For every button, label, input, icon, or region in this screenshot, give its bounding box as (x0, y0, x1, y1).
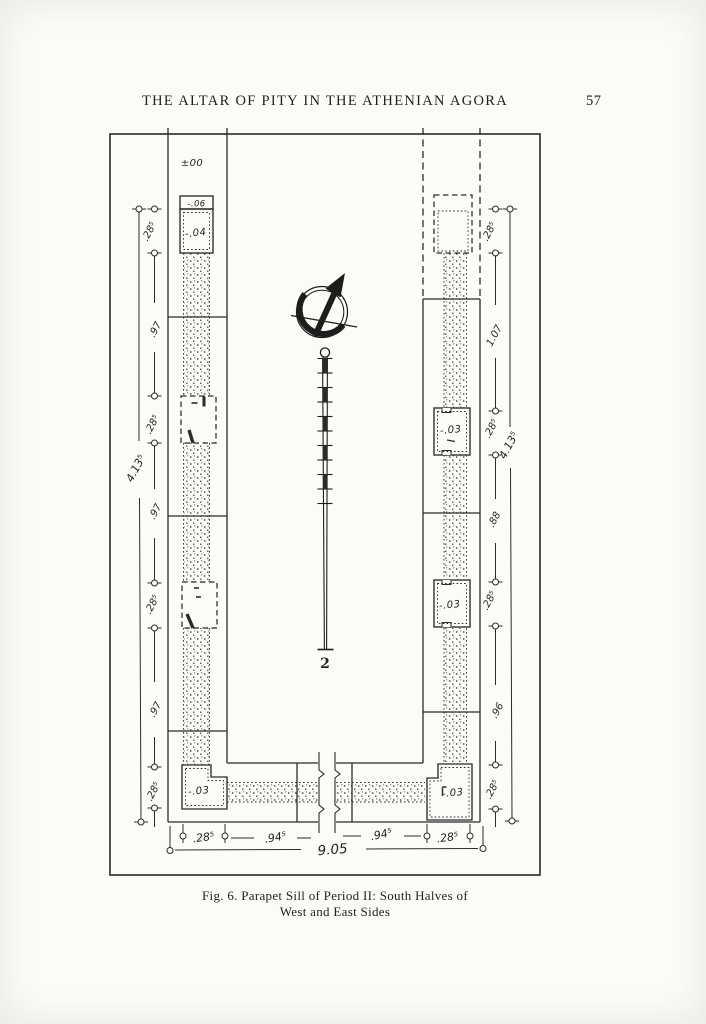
west-dim-0: .28⁵ (140, 220, 159, 243)
west-dim-3: .97 (147, 502, 164, 522)
figure-caption: Fig. 6. Parapet Sill of Period II: South… (105, 888, 565, 920)
east-dim-4: .28⁵ (480, 589, 499, 612)
west-cap-elevation: -.06 (187, 200, 205, 210)
east-dim-2: .28⁵ (482, 417, 501, 440)
east-top-dashed-block (434, 195, 472, 253)
south-dim-1: .94⁵ (263, 829, 287, 846)
datum-label: ±00 (181, 158, 204, 169)
south-sill (168, 752, 480, 833)
leveling-rod-icon (318, 348, 334, 650)
west-dashed-block-1 (181, 396, 216, 443)
page-number: 57 (586, 93, 602, 110)
caption-line-1: Fig. 6. Parapet Sill of Period II: South… (105, 888, 565, 904)
east-mid-elevation: -.03 (440, 424, 462, 437)
east-dim-0: .28⁵ (480, 220, 499, 243)
south-dim-3: .28⁵ (436, 830, 460, 846)
east-lower-elevation: -.03 (439, 599, 461, 612)
east-dim-3: .88 (486, 510, 503, 529)
south-overall-dim: 9.05 (317, 841, 348, 860)
west-dim-5: .97 (147, 700, 164, 720)
west-block-elevation: -.04 (184, 227, 207, 240)
east-dim-6: .28⁵ (483, 778, 502, 801)
west-dim-2: .28⁵ (143, 413, 162, 436)
west-corner-elevation: -.03 (188, 785, 210, 798)
figure-border (110, 134, 540, 875)
east-dim-5: .96 (489, 701, 506, 720)
west-dim-6: .28⁵ (144, 780, 163, 803)
east-overall-dim: 4.13⁵ (496, 430, 521, 462)
south-dim-0: .28⁵ (192, 830, 216, 846)
rod-length-label: 2 (320, 656, 330, 672)
east-dim-1: 1.07 (485, 323, 505, 348)
figure-6-plan: ±00 -.06 -.04 -.03 -.03 -.03 -.03 .28⁵ .… (100, 120, 550, 885)
north-arrow-icon (291, 273, 357, 338)
west-overall-dim: 4.13⁵ (123, 453, 148, 485)
break-mark (319, 752, 324, 833)
east-corner-elevation: -.03 (442, 787, 464, 800)
west-dim-4: .28⁵ (143, 593, 162, 616)
west-dashed-block-2 (182, 582, 217, 628)
caption-line-2: West and East Sides (105, 904, 565, 920)
scanned-page: THE ALTAR OF PITY IN THE ATHENIAN AGORA … (0, 0, 706, 1024)
running-header: THE ALTAR OF PITY IN THE ATHENIAN AGORA (110, 93, 540, 110)
west-dim-1: .97 (147, 320, 164, 340)
south-dim-2: .94⁵ (369, 826, 393, 843)
